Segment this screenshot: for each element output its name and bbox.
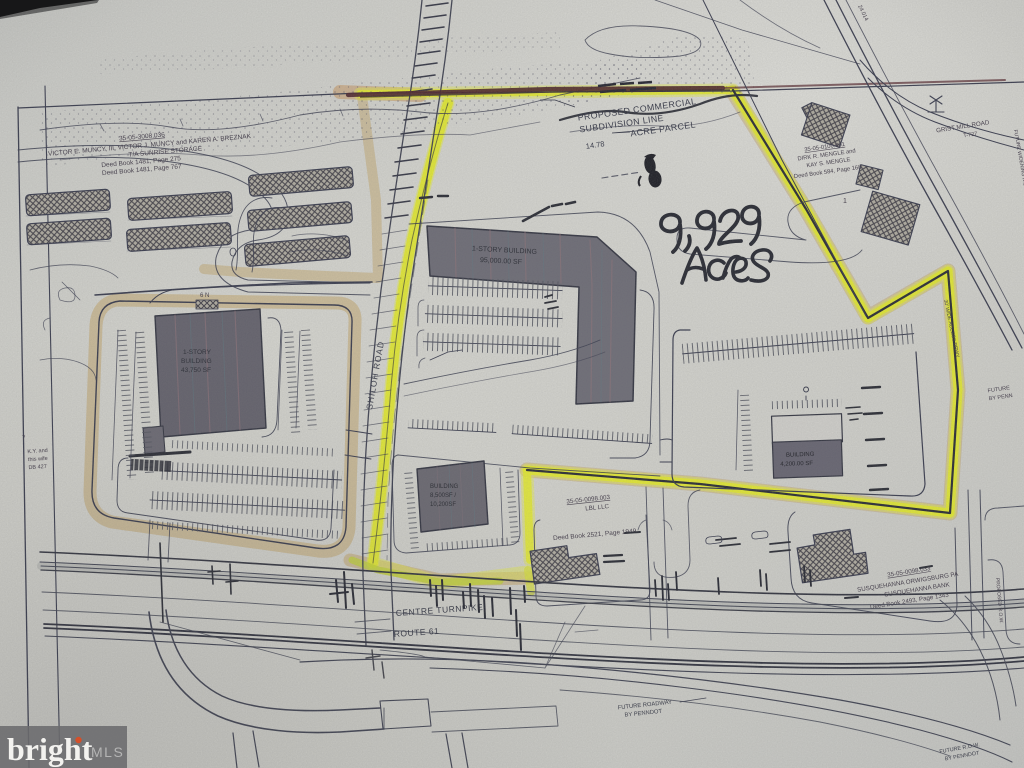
svg-text:bright: bright <box>7 731 93 767</box>
svg-text:MLS: MLS <box>91 744 124 760</box>
